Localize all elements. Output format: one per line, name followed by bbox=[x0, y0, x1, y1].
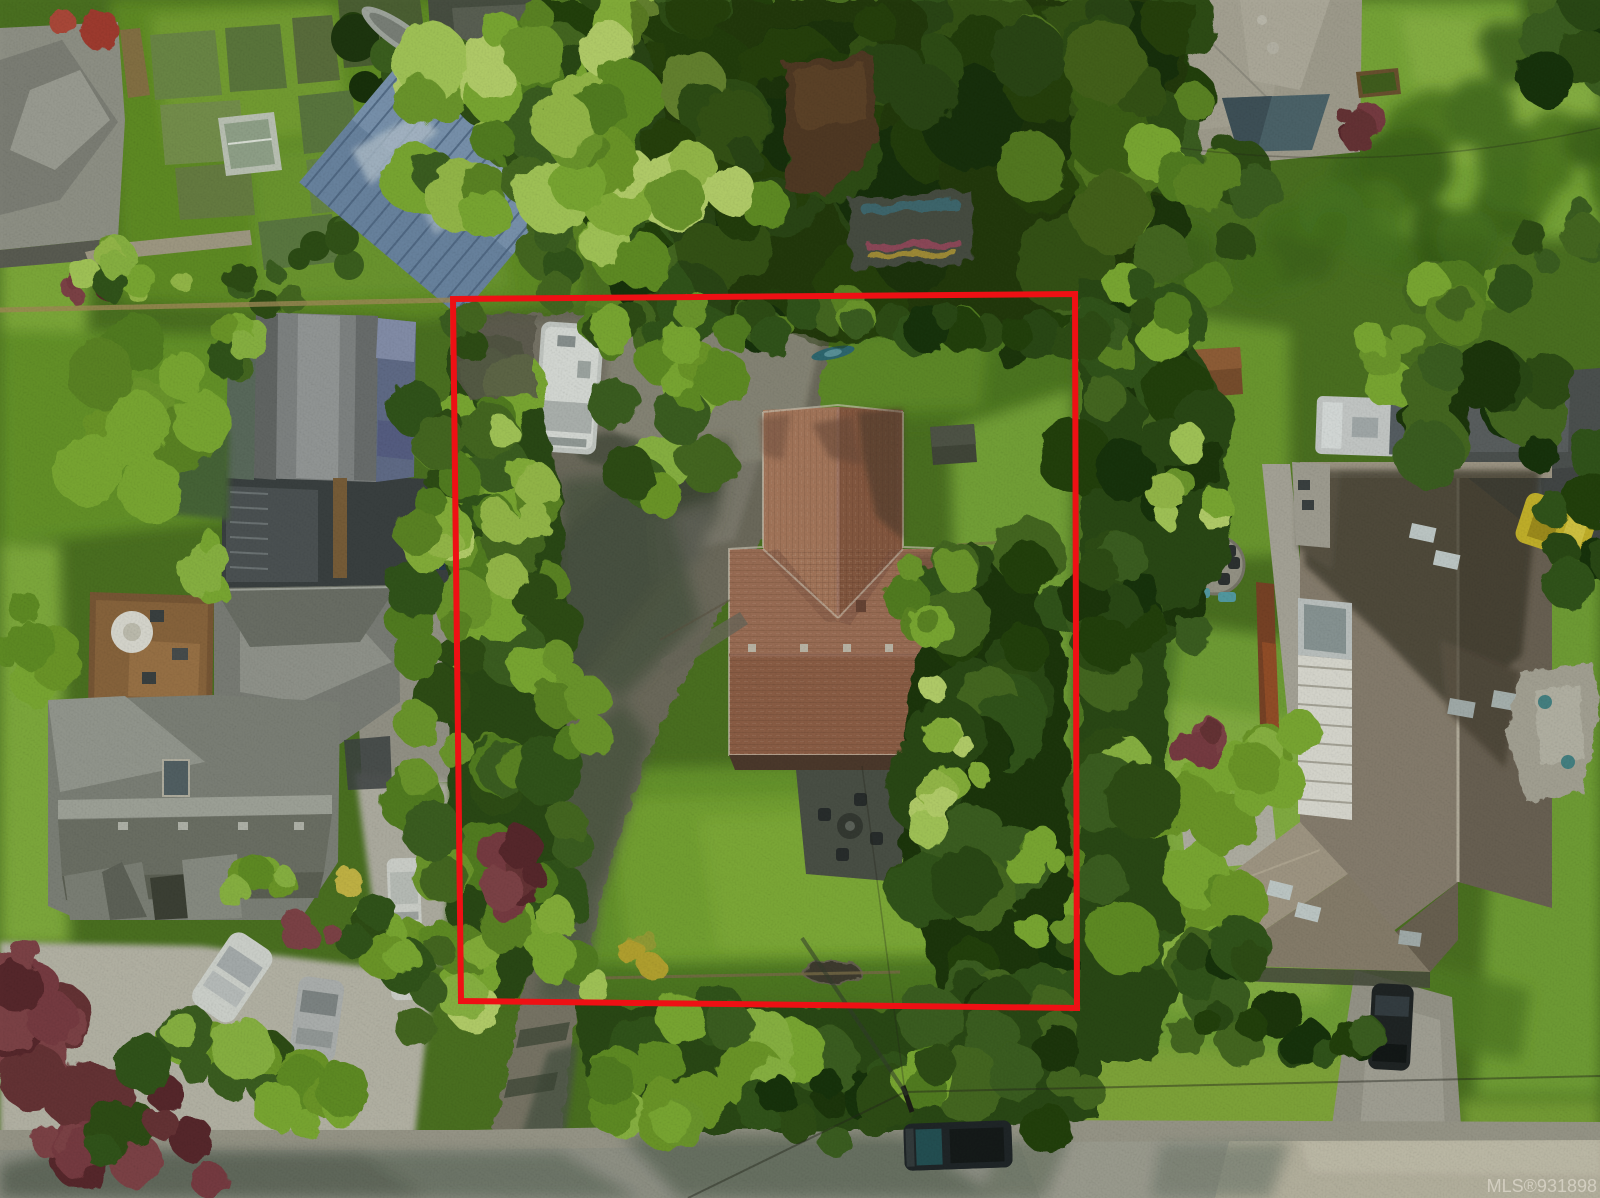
svg-text:MLS®931898: MLS®931898 bbox=[1487, 1176, 1597, 1196]
